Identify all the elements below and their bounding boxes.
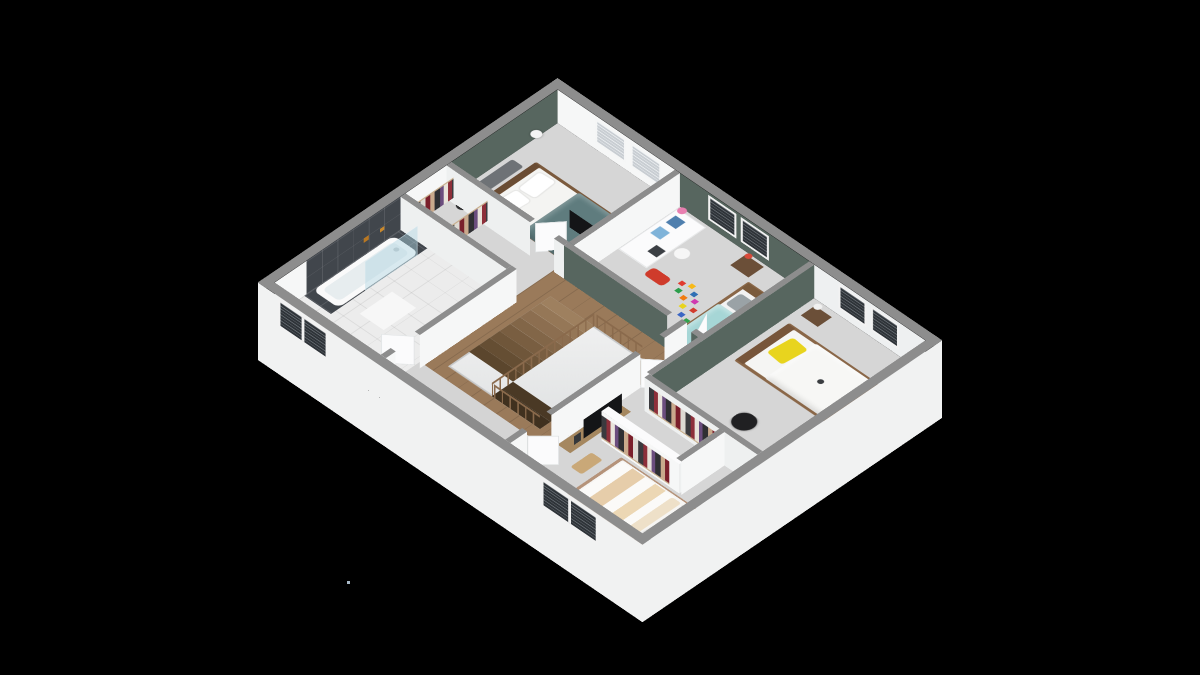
toy-block: [689, 307, 697, 313]
toiletry-bottle: [380, 226, 384, 233]
toy-block: [690, 292, 698, 298]
floor-plan: [275, 123, 926, 567]
shelf-hifi: [647, 245, 665, 258]
toy-block: [679, 295, 687, 301]
render-canvas: [0, 0, 1200, 675]
storage-bin-blue: [666, 216, 686, 230]
window-mullion: [302, 317, 305, 342]
window-mullion: [568, 499, 571, 524]
toy-block: [678, 303, 686, 309]
toy-block: [674, 288, 682, 294]
toy-block: [678, 280, 686, 286]
toy-block: [677, 312, 685, 318]
render-artifact-dot: [347, 581, 350, 584]
toy-block: [691, 299, 699, 305]
storage-bin-blue: [650, 226, 670, 240]
toiletry-bottle: [364, 235, 369, 243]
